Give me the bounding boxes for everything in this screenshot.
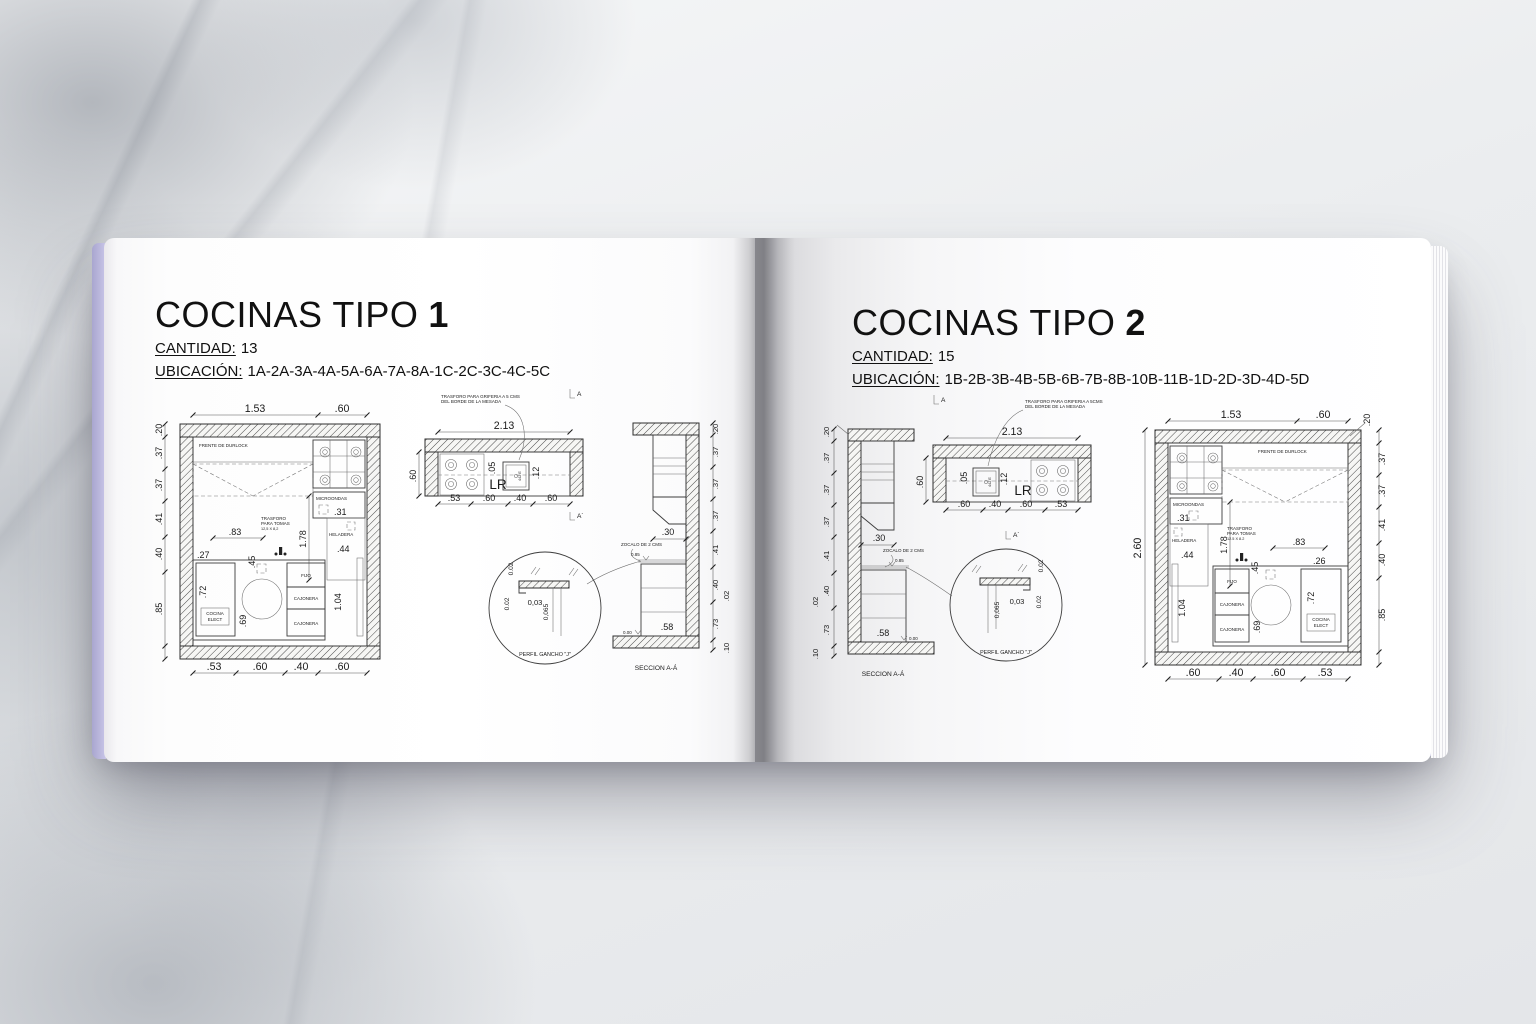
- dim-label: .37: [711, 479, 720, 490]
- dim-label: .12: [531, 467, 541, 480]
- section-caption: SECCION A-Á: [862, 669, 905, 678]
- dim-label: .10: [811, 649, 820, 660]
- cantidad-label: CANTIDAD:: [155, 340, 236, 357]
- base-cabinets: .72 COCINA ELECT .69 FIJO CAJONERA CAJON…: [193, 560, 325, 640]
- faucet-icon: [275, 547, 287, 556]
- dim-label: .02: [722, 591, 731, 602]
- dim-label: .27: [197, 550, 210, 560]
- cantidad-value: 15: [938, 348, 955, 365]
- level-label: 0.85: [895, 558, 904, 563]
- counter-plan: LR .05 442 E .12 2.13 .60 .53 .60 .40 .6…: [408, 389, 584, 520]
- dim-label: .40: [711, 580, 720, 591]
- dim-label: .60: [1271, 667, 1286, 679]
- fridge: HELADERA .44: [327, 518, 365, 580]
- wall-left: [180, 437, 193, 659]
- zocalo-note: ZOCALO DE 2 CMS: [621, 542, 662, 547]
- dim-label: .31: [1177, 513, 1190, 523]
- dim-label: .44: [337, 544, 350, 554]
- base-cabinets: FIJO CAJONERA CAJONERA .69 .72 COCINA EL…: [1213, 566, 1348, 646]
- range-hood: [861, 503, 894, 530]
- j-hook-profile: [519, 588, 526, 593]
- cantidad-label: CANTIDAD:: [852, 348, 933, 365]
- cajonera-label: CAJONERA: [1220, 627, 1245, 632]
- dim-label: .60: [335, 661, 350, 673]
- drawer-unit: .58: [861, 570, 906, 642]
- dim-label: .40: [1229, 667, 1244, 679]
- dim-label: .73: [711, 619, 720, 630]
- left-technical-drawing: 1.53 .60 .20 .37 .37 .41 .40 .85 .53 .60…: [135, 384, 755, 714]
- dim-label: .40: [294, 661, 309, 673]
- dim-label: 0.02: [1038, 559, 1045, 572]
- cantidad-row: CANTIDAD:15: [852, 346, 1309, 367]
- dim-label: .40: [514, 493, 527, 503]
- dim-label: 2.60: [1132, 538, 1144, 559]
- cocina-label: ELECT: [1314, 623, 1329, 628]
- dim-label: .41: [154, 513, 164, 526]
- ubicacion-row: UBICACIÓN:1B-2B-3B-4B-5B-6B-7B-8B-10B-11…: [852, 369, 1309, 390]
- dim-label: .37: [822, 517, 831, 528]
- frente-label: FRENTE DE DURLOCK: [1258, 449, 1307, 454]
- dim-label: .20: [822, 427, 831, 438]
- dim-label: .69: [238, 615, 248, 628]
- microwave: MICROONDAS .31: [1170, 498, 1222, 524]
- wall-top: [180, 424, 380, 437]
- detail-caption: PERFIL GANCHO "J": [519, 652, 571, 658]
- level-mark: [635, 630, 641, 634]
- cooktop: [440, 454, 484, 495]
- floor-plan: 1.53 .60 .20 .37 .37 .41 .40 .85 2.60 .6…: [1132, 409, 1387, 682]
- round-basin: [242, 579, 282, 619]
- dim-label: .72: [198, 586, 208, 599]
- sink: 442 E: [503, 462, 529, 490]
- title-number: 1: [428, 294, 449, 335]
- dim-label: 0,03: [1010, 597, 1025, 606]
- drawer-unit: .58: [641, 564, 686, 636]
- cajonera-label: CAJONERA: [294, 596, 319, 601]
- floor-plan: 1.53 .60 .20 .37 .37 .41 .40 .85 .53 .60…: [154, 403, 380, 676]
- dim-label: .37: [711, 447, 720, 458]
- dim-label: .85: [1377, 609, 1387, 622]
- title-text: COCINAS TIPO: [852, 302, 1115, 343]
- cantidad-row: CANTIDAD:13: [155, 338, 550, 359]
- dim-label: .58: [877, 628, 890, 638]
- dim-label: .40: [1377, 554, 1387, 567]
- wall-right: [1348, 443, 1361, 652]
- dim-label: .45: [247, 556, 257, 569]
- page-title: COCINAS TIPO2: [852, 302, 1309, 344]
- heladera-label: HELADERA: [1172, 538, 1196, 543]
- dim-label: .40: [989, 499, 1002, 509]
- dim-label: 1.53: [1221, 409, 1242, 421]
- page-title: COCINAS TIPO1: [155, 294, 550, 336]
- dim-label: .10: [722, 643, 731, 654]
- round-basin: [1251, 585, 1291, 625]
- dim-label: .72: [1306, 592, 1316, 605]
- microondas-label: MICROONDAS: [316, 496, 347, 501]
- fijo-label: FIJO: [301, 573, 311, 578]
- dim-label: 0.02: [1036, 595, 1043, 608]
- dim-label: .45: [1250, 562, 1260, 575]
- dim-label: .20: [711, 424, 720, 435]
- dim-label: .37: [1377, 485, 1387, 498]
- dim-label: 0,03: [528, 598, 543, 607]
- level-label: 0.00: [909, 636, 918, 641]
- griferia-note: DEL BORDE DE LA MESADA: [1025, 404, 1085, 409]
- dim-label: .53: [207, 661, 222, 673]
- section-cut-mark: [570, 512, 575, 520]
- dim-label: 0.02: [504, 597, 511, 610]
- dim-label: .41: [1377, 519, 1387, 532]
- dim-label: .60: [408, 470, 418, 483]
- dim-label: 1.78: [298, 530, 308, 548]
- dim-label: .60: [545, 493, 558, 503]
- dim-label: .31: [334, 507, 347, 517]
- ubicacion-value: 1B-2B-3B-4B-5B-6B-7B-8B-10B-11B-1D-2D-3D…: [945, 371, 1310, 388]
- left-page-heading: COCINAS TIPO1 CANTIDAD:13 UBICACIÓN:1A-2…: [155, 294, 550, 382]
- dim-label: .58: [661, 622, 674, 632]
- lr-label: LR: [1014, 483, 1032, 498]
- dim-label: 0,065: [994, 601, 1001, 618]
- section-caption: SECCION A-Á: [635, 663, 678, 672]
- title-number: 2: [1125, 302, 1146, 343]
- right-technical-drawing: .30 ZOCALO DE 2 CMS 0.85 .58 0.00 .20 .3…: [793, 390, 1413, 720]
- upper-cabinet: [861, 441, 894, 503]
- dim-label: .02: [811, 597, 820, 608]
- counter-plan: 442 E .05 .12 LR 2.13 .60 .60 .40 .60: [915, 395, 1103, 539]
- dim-label: .20: [1362, 414, 1372, 427]
- page-stack-edge-right: [1431, 246, 1448, 758]
- break-marks: [531, 567, 578, 576]
- j-hook-profile: [1023, 585, 1030, 590]
- ubicacion-label: UBICACIÓN:: [852, 371, 940, 388]
- dim-label: .20: [154, 424, 164, 437]
- dim-label: 1.53: [245, 403, 266, 415]
- wall-right: [367, 437, 380, 646]
- wall-bottom: [1155, 652, 1361, 665]
- dim-label: .60: [958, 499, 971, 509]
- trasforo-note: PARA TOMAS: [261, 521, 290, 526]
- dim-label: 1.04: [333, 593, 343, 611]
- sink-label: 442 E: [518, 471, 522, 481]
- dim-label: .37: [154, 479, 164, 492]
- cantidad-value: 13: [241, 340, 258, 357]
- section-drawing: .30 ZOCALO DE 2 CMS 0.85 .58 0.00 .20 .3…: [811, 425, 934, 678]
- dim-label: 2.13: [1002, 426, 1023, 438]
- section-cut-mark: [934, 395, 939, 404]
- door-leaf: [357, 558, 363, 636]
- dim-label: .60: [1186, 667, 1201, 679]
- sink: 442 E: [973, 468, 999, 496]
- section-marker: A´: [577, 513, 584, 520]
- dim-label: 0.02: [508, 562, 515, 575]
- section-drawing: .30 ZOCALO DE 2 CMS 0.85 .58 0.00 .20 .3…: [613, 421, 731, 673]
- alacena-proyeccion: [193, 464, 313, 496]
- dim-label: .37: [154, 447, 164, 460]
- dim-label: 0,065: [543, 603, 550, 620]
- dim-label: .37: [822, 453, 831, 464]
- cooktop: [1170, 446, 1222, 494]
- section-cut-mark: [1006, 531, 1011, 539]
- dim-label: .30: [873, 533, 886, 543]
- countertop-edge: [519, 581, 569, 588]
- dim-label: .53: [448, 493, 461, 503]
- dim-label: .69: [1252, 621, 1262, 634]
- level-label: 0.85: [631, 552, 640, 557]
- cajonera-label: CAJONERA: [1220, 602, 1245, 607]
- cajonera-label: CAJONERA: [294, 621, 319, 626]
- dim-label: .12: [999, 473, 1009, 486]
- dim-label: .26: [1313, 556, 1326, 566]
- trasforo-note: 12.5 X 8.2: [1227, 537, 1244, 541]
- dim-label: .60: [915, 476, 925, 489]
- dim-label: .60: [483, 493, 496, 503]
- section-cut-mark: [570, 389, 575, 398]
- cocina-label: COCINA: [206, 611, 224, 616]
- dim-label: .37: [1377, 453, 1387, 466]
- dim-label: .37: [711, 511, 720, 522]
- section-marker: A´: [1013, 532, 1020, 539]
- dim-label: .60: [1020, 499, 1033, 509]
- ubicacion-value: 1A-2A-3A-4A-5A-6A-7A-8A-1C-2C-3C-4C-5C: [248, 363, 551, 380]
- level-label: 0.00: [623, 630, 632, 635]
- fijo-label: FIJO: [1227, 579, 1237, 584]
- microwave: MICROONDAS .31: [313, 492, 365, 518]
- title-text: COCINAS TIPO: [155, 294, 418, 335]
- griferia-note: DEL BORDE DE LA MESADA: [441, 399, 501, 404]
- alacena-proyeccion: [1222, 470, 1348, 502]
- ubicacion-row: UBICACIÓN:1A-2A-3A-4A-5A-6A-7A-8A-1C-2C-…: [155, 361, 550, 382]
- dim-label: .60: [253, 661, 268, 673]
- level-mark: [643, 556, 649, 560]
- trasforo-note: PARA TOMAS: [1227, 531, 1256, 536]
- faucet-icon: [1236, 553, 1248, 562]
- ubicacion-label: UBICACIÓN:: [155, 363, 243, 380]
- dim-label: 1.04: [1177, 599, 1187, 617]
- dim-label: .44: [1181, 550, 1194, 560]
- wall-left: [1155, 443, 1168, 665]
- frente-label: FRENTE DE DURLOCK: [199, 443, 248, 448]
- dim-label: .60: [1316, 409, 1331, 421]
- break-marks: [972, 564, 1027, 573]
- cocina-label: ELECT: [208, 617, 223, 622]
- detail-caption: PERFIL GANCHO "J": [980, 650, 1032, 656]
- dim-label: .73: [822, 625, 831, 636]
- dim-label: .41: [711, 545, 720, 556]
- dim-label: .41: [822, 551, 831, 562]
- heladera-label: HELADERA: [329, 532, 353, 537]
- dim-label: .53: [1318, 667, 1333, 679]
- dim-label: .40: [154, 548, 164, 561]
- wall-bottom: [180, 646, 380, 659]
- cooktop: [313, 440, 365, 488]
- section-marker: A: [577, 391, 582, 398]
- dim-label: .30: [662, 527, 675, 537]
- zocalo-note: ZOCALO DE 2 CMS: [883, 548, 924, 553]
- range-hood: [653, 497, 686, 524]
- dim-label: .85: [154, 603, 164, 616]
- dim-label: .53: [1055, 499, 1068, 509]
- wall-top: [1155, 430, 1361, 443]
- countertop-edge: [980, 578, 1030, 585]
- dim-label: .40: [822, 586, 831, 597]
- dim-label: .05: [959, 472, 969, 485]
- sink-label: 442 E: [988, 477, 992, 487]
- dim-label: .83: [1293, 537, 1306, 547]
- left-page: COCINAS TIPO1 CANTIDAD:13 UBICACIÓN:1A-2…: [104, 238, 755, 762]
- right-page: COCINAS TIPO2 CANTIDAD:15 UBICACIÓN:1B-2…: [755, 238, 1431, 762]
- dim-label: .60: [335, 403, 350, 415]
- trasforo-note: 12,5 X 8,2: [261, 527, 278, 531]
- cooktop: [1031, 460, 1075, 501]
- dim-label: .83: [229, 527, 242, 537]
- fridge: HELADERA .44: [1170, 524, 1208, 586]
- dim-label: .37: [822, 485, 831, 496]
- cocina-label: COCINA: [1312, 617, 1330, 622]
- dim-label: .05: [487, 462, 497, 475]
- dim-label: 2.13: [494, 420, 515, 432]
- section-marker: A: [941, 397, 946, 404]
- upper-cabinet: [653, 435, 686, 497]
- microondas-label: MICROONDAS: [1173, 502, 1204, 507]
- right-page-heading: COCINAS TIPO2 CANTIDAD:15 UBICACIÓN:1B-2…: [852, 302, 1309, 390]
